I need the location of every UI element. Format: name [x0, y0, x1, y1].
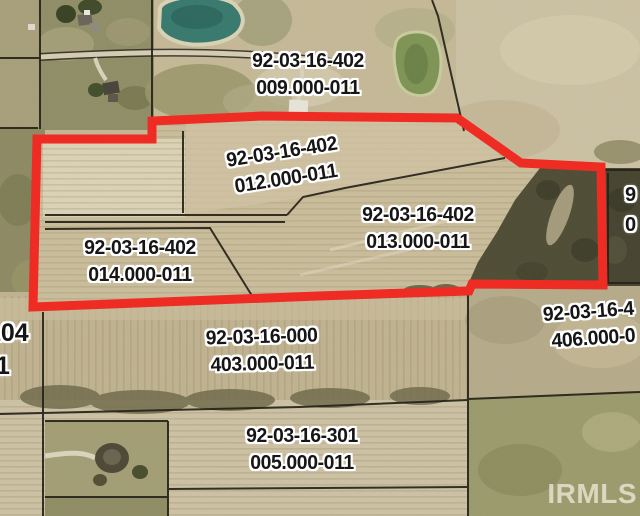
parcel-id: 92-03-16-000	[205, 323, 318, 353]
parcel-label-403: 92-03-16-000 403.000-011	[205, 323, 318, 380]
parcel-id: 0	[625, 210, 636, 240]
parcel-id: 92-03-16-301	[246, 423, 358, 450]
parcel-id: 104	[0, 317, 29, 350]
parcel-label-left-edge-clipped: 104 1	[0, 317, 29, 383]
parcel-id: 1	[0, 350, 29, 383]
parcel-id: 9	[625, 180, 636, 210]
parcel-label-005: 92-03-16-301 005.000-011	[246, 423, 358, 477]
parcel-label-014: 92-03-16-402 014.000-011	[84, 235, 196, 289]
parcel-id: 014.000-011	[84, 262, 196, 289]
parcel-label-009: 92-03-16-402 009.000-011	[252, 48, 364, 102]
parcel-id: 92-03-16-402	[362, 202, 474, 229]
irmls-watermark: IRMLS	[547, 478, 637, 510]
parcel-id: 013.000-011	[362, 229, 474, 256]
aerial-parcel-map[interactable]: 92-03-16-402 009.000-011 92-03-16-402 01…	[0, 0, 640, 516]
parcel-id: 005.000-011	[246, 450, 358, 477]
parcel-id: 92-03-16-402	[84, 235, 196, 262]
parcel-id: 009.000-011	[252, 75, 364, 102]
parcel-label-right-edge-clipped: 9 0	[625, 180, 636, 240]
parcel-label-406-clipped: 92-03-16-4 406.000-0	[542, 296, 637, 356]
parcel-label-013: 92-03-16-402 013.000-011	[362, 202, 474, 256]
parcel-id: 92-03-16-402	[252, 48, 364, 75]
parcel-id: 403.000-011	[206, 350, 319, 380]
